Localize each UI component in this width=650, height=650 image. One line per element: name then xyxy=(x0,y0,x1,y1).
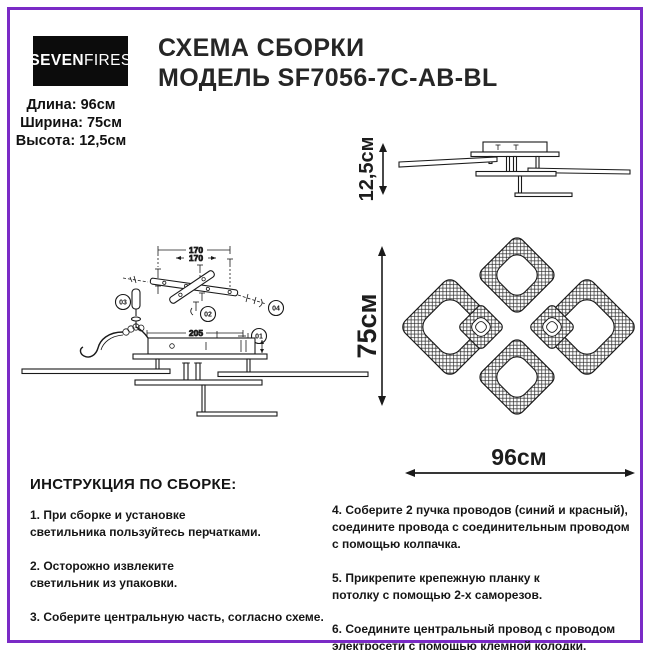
width-96-label: 96см xyxy=(491,444,546,470)
fixture-body xyxy=(22,331,368,416)
exploded-assembly-diagram: 170 170 xyxy=(10,232,395,432)
instruction-step-2: 2. Осторожно извлеките светильник из упа… xyxy=(30,558,330,592)
light-ring-bottom xyxy=(477,337,558,418)
side-view-diagram: 12,5см xyxy=(350,116,640,228)
height-dimension-arrow: 12,5см xyxy=(356,137,387,202)
instruction-step-5: 5. Прикрепите крепежную планку к потолку… xyxy=(332,570,638,604)
dimension-length: Длина: 96см xyxy=(12,96,130,114)
callout-02: 02 xyxy=(201,307,216,322)
top-view-diagram: 96см xyxy=(398,228,648,480)
logo-bold-text: SEVEN xyxy=(29,52,84,70)
wires xyxy=(80,324,148,357)
instructions-column-left: 1. При сборке и установке светильника по… xyxy=(30,507,330,643)
callout-02-label: 02 xyxy=(204,312,212,319)
dim-205: 205 xyxy=(147,328,243,338)
instructions-heading: ИНСТРУКЦИЯ ПО СБОРКЕ: xyxy=(30,476,237,493)
dimensions-summary: Длина: 96см Ширина: 75см Высота: 12,5см xyxy=(12,96,130,150)
right-screw-leader xyxy=(238,294,266,307)
dimension-height: Высота: 12,5см xyxy=(12,132,130,150)
width-75-label: 75см xyxy=(352,293,382,358)
dim-205-label: 205 xyxy=(189,328,203,338)
callout-03-label: 03 xyxy=(119,300,127,307)
title-line-1: СХЕМА СБОРКИ xyxy=(158,33,498,63)
callout-04: 04 xyxy=(269,301,284,316)
height-dimension-label: 12,5см xyxy=(356,137,378,202)
instruction-step-6: 6. Соедините центральный провод с провод… xyxy=(332,621,638,650)
page-title: СХЕМА СБОРКИ МОДЕЛЬ SF7056-7C-AB-BL xyxy=(158,33,498,93)
brand-logo: SEVENFIRES xyxy=(33,36,128,86)
left-screw-leader xyxy=(123,276,148,283)
width-75-arrow: 75см xyxy=(352,246,386,406)
instructions-column-right: 4. Соберите 2 пучка проводов (синий и кр… xyxy=(332,502,638,650)
light-ring-top xyxy=(477,235,558,316)
side-view-fixture xyxy=(399,142,630,197)
callout-03: 03 xyxy=(116,295,131,310)
instruction-step-4: 4. Соберите 2 пучка проводов (синий и кр… xyxy=(332,502,638,553)
callout-04-label: 04 xyxy=(272,306,280,313)
logo-light-text: FIRES xyxy=(84,52,132,70)
width-96-arrow: 96см xyxy=(405,444,635,477)
title-line-2: МОДЕЛЬ SF7056-7C-AB-BL xyxy=(158,63,498,93)
screw-02 xyxy=(191,302,199,315)
dim-170-narrow: 170 xyxy=(176,253,216,263)
instruction-step-1: 1. При сборке и установке светильника по… xyxy=(30,507,330,541)
assembly-sheet: SEVENFIRES СХЕМА СБОРКИ МОДЕЛЬ SF7056-7C… xyxy=(0,0,650,650)
instruction-step-3: 3. Соберите центральную часть, согласно … xyxy=(30,609,330,626)
dim-170-narrow-label: 170 xyxy=(189,253,203,263)
callout-01-label: 01 xyxy=(255,334,263,341)
dimension-width: Ширина: 75см xyxy=(12,114,130,132)
screwdriver xyxy=(132,289,141,328)
